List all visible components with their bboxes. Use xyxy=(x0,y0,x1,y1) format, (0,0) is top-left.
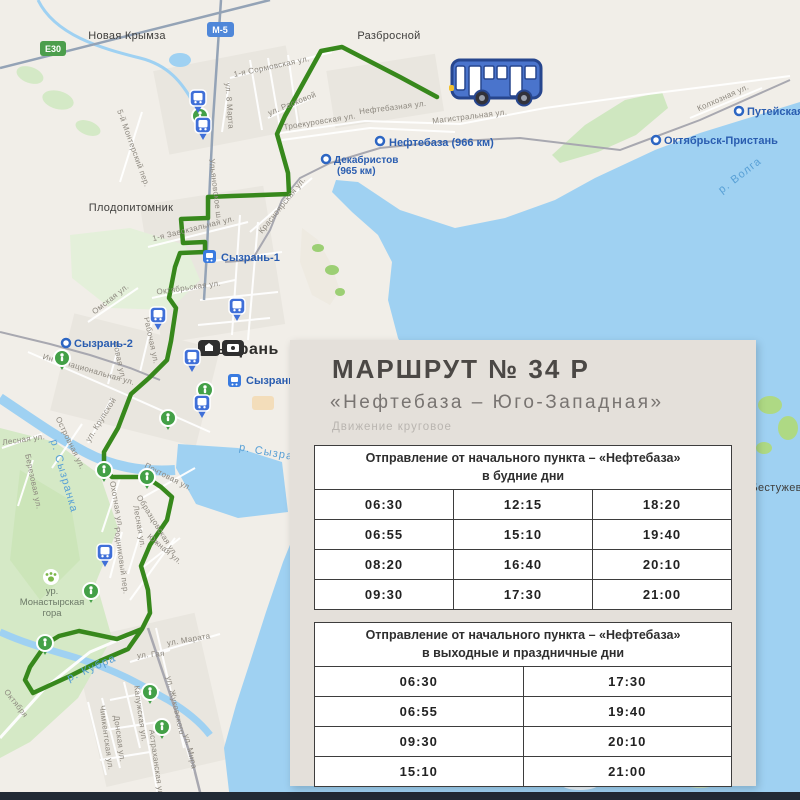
departure-time: 20:10 xyxy=(523,727,732,757)
station-syzran1: Сызрань-1 xyxy=(203,250,280,264)
departure-time: 15:10 xyxy=(453,520,592,550)
svg-text:Монастырская: Монастырская xyxy=(20,597,85,608)
station-dekabristov-km: (965 км) xyxy=(337,166,376,177)
table-row: 06:55 15:10 19:40 xyxy=(315,520,732,550)
departure-time: 17:30 xyxy=(523,667,732,697)
departure-time: 12:15 xyxy=(453,490,592,520)
departure-time: 09:30 xyxy=(315,727,524,757)
svg-text:Сызрань-1: Сызрань-1 xyxy=(221,252,280,264)
departure-time: 21:00 xyxy=(592,580,731,610)
departure-time: 20:10 xyxy=(592,550,731,580)
svg-text:ур.: ур. xyxy=(46,586,59,597)
route-34r-infographic: 1-я Сормовская ул. ул. Расковой Троекуро… xyxy=(0,0,800,800)
place-novaya-krymza: Новая Крымза xyxy=(88,30,166,42)
place-plodopitomnik: Плодопитомник xyxy=(89,202,174,214)
svg-text:E30: E30 xyxy=(45,44,61,54)
table-row: 06:30 12:15 18:20 xyxy=(315,490,732,520)
station-dot xyxy=(735,107,743,115)
weekend-schedule-table: Отправление от начального пункта – «Нефт… xyxy=(314,622,732,787)
station-dot xyxy=(376,137,384,145)
svg-text:гора: гора xyxy=(42,608,62,619)
route-title: МАРШРУТ № 34 Р xyxy=(332,354,732,385)
departure-time: 06:55 xyxy=(315,697,524,727)
station-puteyskaya: Путейская xyxy=(747,106,800,118)
departure-time: 18:20 xyxy=(592,490,731,520)
weekend-table-header: Отправление от начального пункта – «Нефт… xyxy=(315,623,732,667)
station-dekabristov: Декабристов xyxy=(334,154,398,166)
svg-text:Сызрань-2: Сызрань-2 xyxy=(74,338,133,350)
weekday-table-header: Отправление от начального пункта – «Нефт… xyxy=(315,446,732,490)
table-row: 06:30 17:30 xyxy=(315,667,732,697)
departure-time: 06:30 xyxy=(315,667,524,697)
table-row: 15:10 21:00 xyxy=(315,757,732,787)
svg-text:М-5: М-5 xyxy=(212,25,228,35)
bus-icon xyxy=(449,60,541,106)
table-row: 08:20 16:40 20:10 xyxy=(315,550,732,580)
route-note: Движение круговое xyxy=(332,421,732,433)
route-endpoints: «Нефтебаза – Юго-Западная» xyxy=(330,392,732,414)
schedule-card: МАРШРУТ № 34 Р «Нефтебаза – Юго-Западная… xyxy=(290,340,756,786)
departure-time: 08:20 xyxy=(315,550,454,580)
place-bestuzhevka: Бестужевка xyxy=(750,482,800,494)
station-oktyabrsk-pristan: Октябрьск-Пристань xyxy=(664,135,778,147)
departure-time: 09:30 xyxy=(315,580,454,610)
bus-headlight xyxy=(449,85,454,91)
table-row: 09:30 17:30 21:00 xyxy=(315,580,732,610)
departure-time: 06:55 xyxy=(315,520,454,550)
table-row: 09:30 20:10 xyxy=(315,727,732,757)
departure-time: 21:00 xyxy=(523,757,732,787)
departure-time: 06:30 xyxy=(315,490,454,520)
departure-time: 19:40 xyxy=(523,697,732,727)
departure-time: 15:10 xyxy=(315,757,524,787)
departure-time: 17:30 xyxy=(453,580,592,610)
departure-time: 19:40 xyxy=(592,520,731,550)
table-row: 06:55 19:40 xyxy=(315,697,732,727)
station-neftebaza: Нефтебаза (966 км) xyxy=(389,137,494,149)
place-razbrosnoy: Разбросной xyxy=(357,30,420,42)
weekday-schedule-table: Отправление от начального пункта – «Нефт… xyxy=(314,445,732,610)
departure-time: 16:40 xyxy=(453,550,592,580)
station-dot xyxy=(652,136,660,144)
station-dot xyxy=(322,155,330,163)
